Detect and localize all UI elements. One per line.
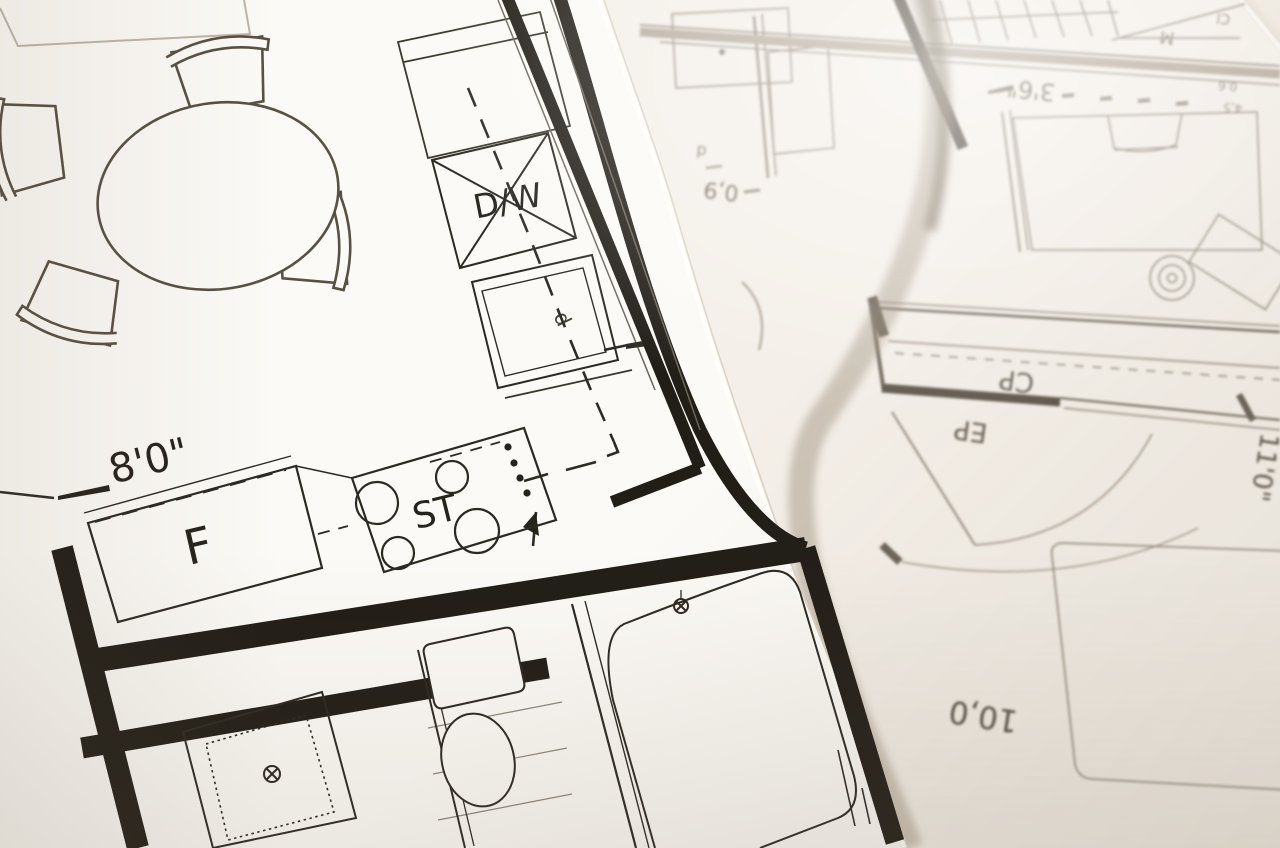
electrical-panel-label: EP xyxy=(952,413,989,448)
blueprint-photo: d 0,9 M Cl 3'6" 0,6 4,5 xyxy=(0,0,1280,848)
tile-label-m: M xyxy=(1159,26,1176,48)
closet-label: CP xyxy=(997,363,1036,399)
small-dim-a: 0,6 xyxy=(1218,78,1238,93)
door-width-dim: 0,9 xyxy=(702,176,740,205)
under-sheet-fixture-label: d xyxy=(696,142,708,162)
tile-label-cl: Cl xyxy=(1216,9,1232,27)
